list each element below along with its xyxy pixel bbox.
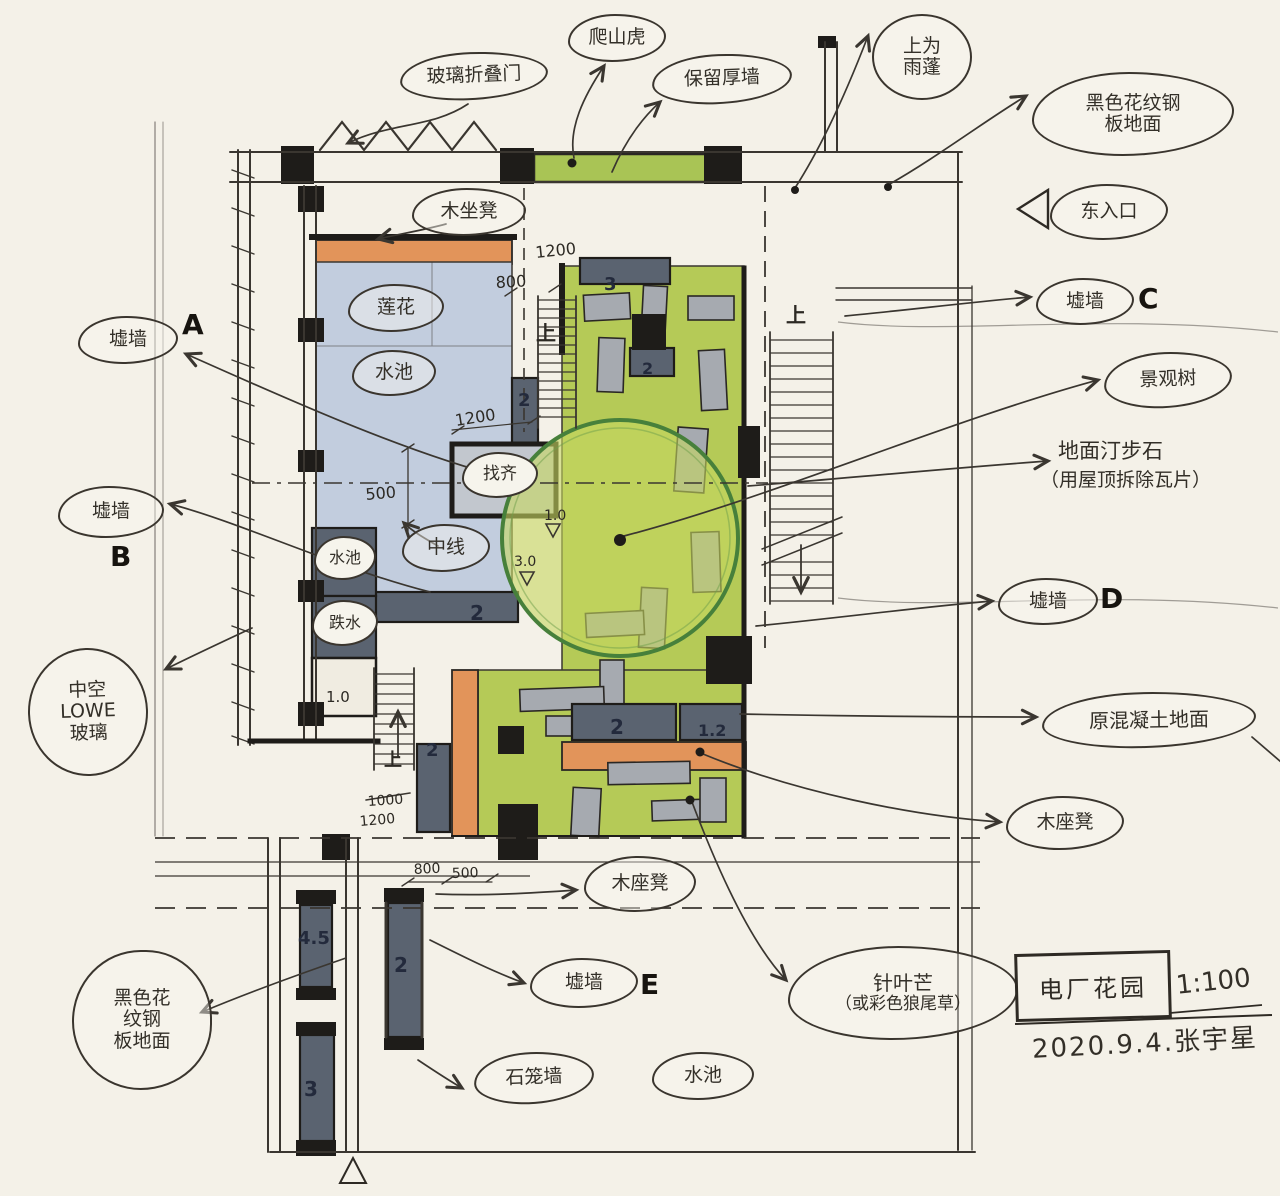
- dim-800-top: 800: [495, 271, 526, 292]
- center-line-label: 中线: [427, 537, 465, 558]
- black-steel-bl-line2: 纹钢: [123, 1009, 161, 1030]
- pool-bottom-label: 水池: [684, 1065, 722, 1086]
- project-title: 电厂花园: [1039, 967, 1148, 1005]
- black-steel-bl-line1: 黑色花: [113, 988, 170, 1009]
- hollow-glass-line3: 玻璃: [69, 722, 108, 745]
- ruin-wall-e-label: 墟墙: [565, 972, 603, 993]
- level-1-0: 1.0: [544, 508, 566, 524]
- wood-bench-right-label: 木座凳: [1036, 812, 1093, 833]
- wall-mark-a: A: [182, 308, 204, 341]
- num-4-5-bar: 4.5: [298, 928, 330, 949]
- ruin-wall-d-label: 墟墙: [1029, 591, 1067, 612]
- bottom-triangle-marker: [340, 1158, 366, 1183]
- wood-bench-top-label: 木坐凳: [440, 201, 497, 222]
- num-2-bench-wall: 2: [610, 715, 624, 739]
- wall-mark-d: D: [1100, 582, 1123, 615]
- scale-underline: [1170, 1005, 1262, 1013]
- east-entrance-triangle: [1018, 190, 1048, 228]
- num-3-green-top: 3: [604, 274, 617, 295]
- stepping-stone-note-line1: 地面汀步石: [1058, 438, 1163, 465]
- gabion-wall-label: 石笼墙: [505, 1066, 563, 1089]
- num-1-0-room: 1.0: [326, 688, 350, 706]
- num-3-corridor-bar: 3: [304, 1077, 318, 1101]
- hollow-glass-line2: LOWE: [60, 700, 116, 723]
- dim-1200-low: 1200: [359, 811, 396, 830]
- num-2-green-mid: 2: [642, 359, 653, 378]
- wall-mark-b: B: [110, 540, 131, 573]
- drop-water-label: 跌水: [329, 614, 361, 632]
- canopy-above-line1: 上为: [903, 36, 941, 57]
- num-2-stair-bar: 2: [426, 740, 439, 761]
- level-3-0: 3.0: [514, 554, 536, 570]
- black-steel-bl-line3: 板地面: [113, 1031, 170, 1052]
- glass-folding-door-label: 玻璃折叠门: [426, 64, 522, 89]
- black-steel-floor-line2: 板地面: [1104, 114, 1161, 135]
- dim-800-low: 800: [413, 861, 441, 878]
- pool-small-label: 水池: [329, 549, 361, 567]
- num-2-corridor-bar: 2: [394, 953, 408, 977]
- retain-thick-wall-label: 保留厚墙: [684, 67, 761, 91]
- num-1-2-bench-wall: 1.2: [698, 721, 726, 740]
- dim-500-low: 500: [452, 865, 479, 882]
- callout-black-steel-floor-bl: 黑色花 纹钢 板地面: [72, 950, 212, 1090]
- needle-grass-line1: 针叶芒: [873, 972, 933, 994]
- stepping-stone-note-line2: （用屋顶拆除瓦片）: [1040, 468, 1211, 493]
- ruin-wall-b-label: 墟墙: [92, 501, 130, 522]
- pool-upper-label: 水池: [375, 362, 413, 383]
- wood-bench-vertical-strip: [452, 670, 478, 836]
- ruin-wall-a-label: 墟墙: [109, 329, 147, 350]
- align-mark-label: 找齐: [483, 465, 517, 484]
- lotus-label: 莲花: [377, 297, 415, 318]
- num-2-pool-wall: 2: [470, 601, 484, 625]
- wood-bench-mid-label: 木座凳: [611, 873, 668, 894]
- needle-grass-line2: （或彩色狼尾草）: [835, 995, 971, 1014]
- up-label-stair-right: 上: [786, 303, 806, 327]
- sketch-plan-page: 1200 800 上 1200 500 1.0 3.0 2 2 1.0 2 上 …: [0, 0, 1280, 1196]
- num-2-pool-side: 2: [518, 390, 531, 411]
- climbing-vine-label: 爬山虎: [588, 27, 645, 48]
- glass-folding-door-zigzag: [320, 122, 496, 150]
- landscape-tree-label: 景观树: [1139, 368, 1197, 391]
- wall-mark-c: C: [1138, 282, 1159, 315]
- up-label-bottom: 上: [384, 750, 402, 771]
- original-concrete-floor-label: 原混凝土地面: [1089, 708, 1209, 732]
- hollow-glass-line1: 中空: [68, 679, 107, 702]
- black-steel-floor-line1: 黑色花纹钢: [1085, 93, 1180, 114]
- retained-wall-green-strip: [534, 154, 706, 182]
- wall-mark-e: E: [640, 968, 659, 1001]
- ruin-wall-c-label: 墟墙: [1066, 291, 1104, 312]
- east-entrance-label: 东入口: [1080, 201, 1137, 222]
- dim-1200-top: 1200: [534, 239, 576, 262]
- dim-1000-struck: 1000: [367, 792, 404, 810]
- callout-canopy-above: 上为 雨蓬: [872, 14, 972, 100]
- canopy-above-line2: 雨蓬: [903, 57, 941, 78]
- dim-500-mid: 500: [365, 482, 397, 504]
- title-block-box: 电厂花园: [1014, 950, 1172, 1022]
- up-label-top: 上: [536, 321, 556, 345]
- stair-right: [762, 332, 842, 604]
- wood-bench-top-strip: [316, 240, 512, 264]
